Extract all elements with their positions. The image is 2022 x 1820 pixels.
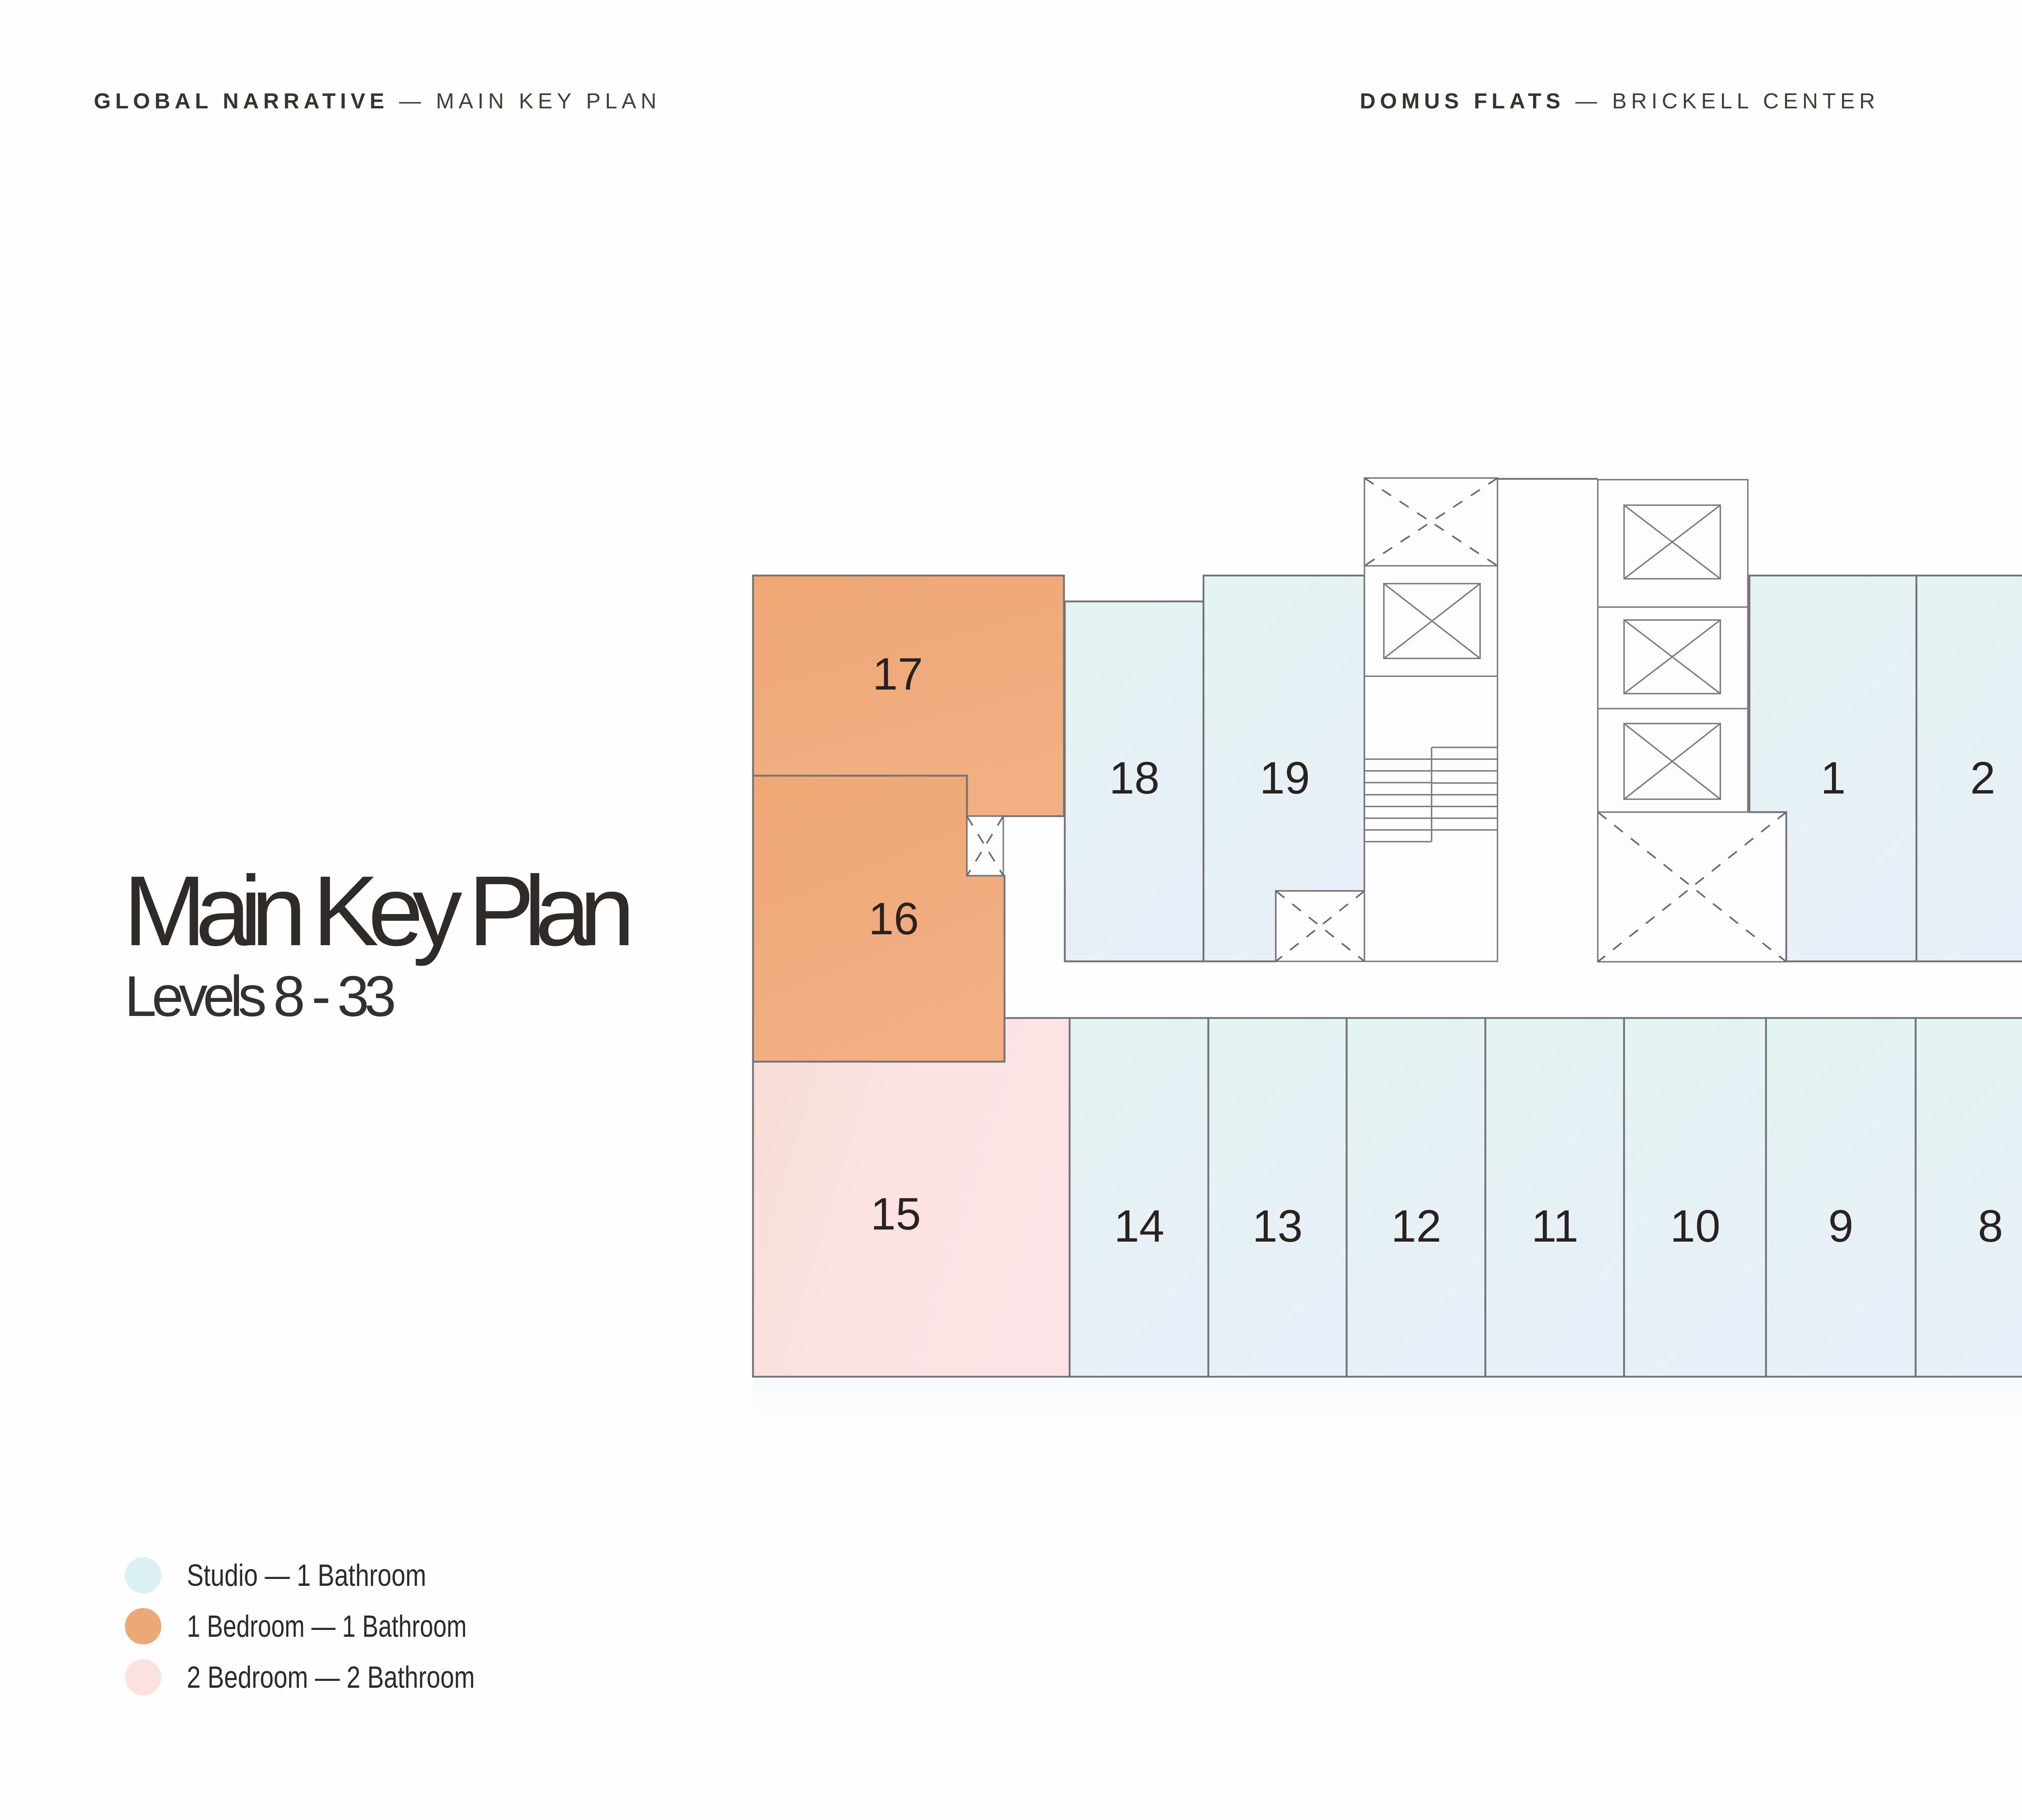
svg-text:8: 8	[1978, 1201, 2003, 1251]
svg-text:18: 18	[1109, 753, 1160, 803]
svg-text:10: 10	[1670, 1201, 1721, 1251]
svg-text:16: 16	[869, 893, 919, 944]
svg-text:2: 2	[1970, 753, 1995, 803]
svg-text:12: 12	[1391, 1201, 1442, 1251]
svg-text:11: 11	[1531, 1201, 1578, 1251]
svg-text:14: 14	[1114, 1201, 1165, 1251]
svg-text:9: 9	[1828, 1201, 1853, 1251]
svg-text:DOMUS FLATS — BRICKELL CENTER: DOMUS FLATS — BRICKELL CENTER	[1360, 89, 1879, 113]
svg-text:19: 19	[1260, 753, 1310, 803]
svg-text:Main Key Plan: Main Key Plan	[123, 855, 635, 967]
svg-text:1: 1	[1821, 753, 1846, 803]
svg-text:17: 17	[873, 649, 923, 699]
svg-text:13: 13	[1252, 1201, 1303, 1251]
svg-text:1 Bedroom — 1 Bathroom: 1 Bedroom — 1 Bathroom	[187, 1609, 467, 1644]
svg-text:Studio — 1 Bathroom: Studio — 1 Bathroom	[187, 1558, 426, 1593]
svg-text:GLOBAL NARRATIVE — MAIN KEY P: GLOBAL NARRATIVE — MAIN KEY PLAN	[94, 89, 661, 113]
svg-text:2 Bedroom — 2 Bathroom: 2 Bedroom — 2 Bathroom	[187, 1660, 475, 1695]
svg-text:Levels 8 - 33: Levels 8 - 33	[125, 964, 396, 1029]
svg-text:15: 15	[871, 1189, 921, 1239]
